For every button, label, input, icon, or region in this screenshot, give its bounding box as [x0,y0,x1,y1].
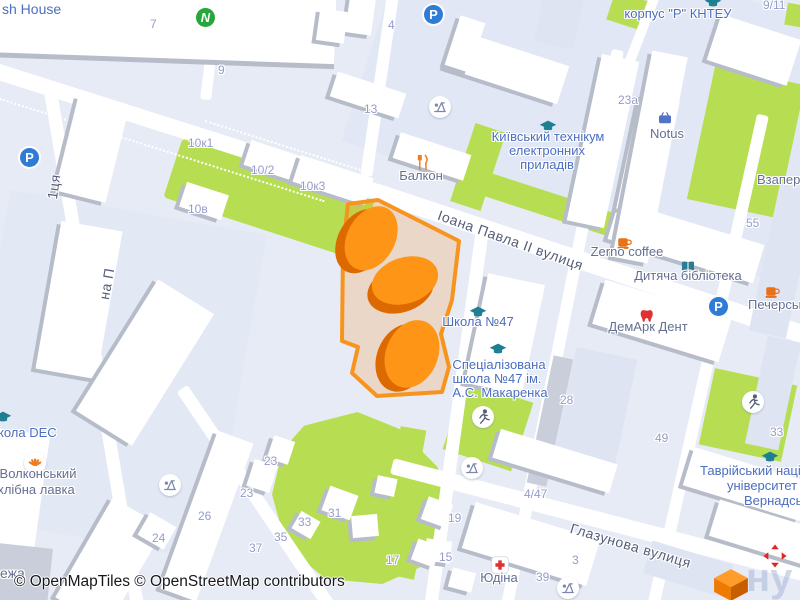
green-area [784,3,800,27]
poi-label: кола DEC [0,425,57,440]
building [345,0,377,36]
house-number: 9 [218,63,225,77]
house-number: 23a [618,93,638,107]
house-number: 26 [198,509,211,523]
building [351,514,379,538]
house-number: 55 [746,216,759,230]
house-number: 19 [448,511,461,525]
house-number: 7 [150,17,157,31]
street-label: 1ця [44,173,63,200]
building [374,475,397,497]
building [316,8,348,44]
house-number: 49 [655,431,668,445]
poi-label: Zerno coffee [591,244,664,259]
house-number: 37 [249,541,262,555]
parking-icon[interactable]: P [424,5,443,24]
house-number: 23 [264,454,277,468]
basket-icon[interactable] [656,109,674,127]
building [55,95,129,203]
orange-building [359,248,447,322]
poi-label: Печерськ [748,297,800,312]
poi-label: університет ім [727,478,800,493]
poi-label: Таврійський націон [700,463,800,478]
poi-label: Київський технікум [492,129,605,144]
house-number: 31 [328,506,341,520]
poi-label: Школа №47 [442,314,514,329]
poi-label: школа №47 ім. [452,371,541,386]
house-number: 9/11 [763,0,785,12]
house-number: 10к3 [300,179,325,193]
poi-label: Взаперт [757,172,800,187]
house-number: 23 [240,486,253,500]
poi-label: ДемАрк Дент [608,319,687,334]
playground-icon[interactable] [159,474,181,496]
house-number: 13 [364,102,377,116]
parking-icon[interactable]: P [20,148,39,167]
poi-label: корпус "Р" КНТЕУ [624,6,731,21]
cube-logo[interactable] [712,568,750,600]
poi-label: Волконський [0,466,76,481]
house-number: 17 [386,553,399,567]
map-canvas[interactable]: Іоана Павла II вулиця Глазунова вулиця 1… [0,0,800,600]
playground-icon[interactable] [557,577,579,599]
pan-control-icon[interactable] [762,543,788,574]
poi-label: Вернадсько [744,493,800,508]
poi-label: Юдіна [480,570,517,585]
playground-icon[interactable] [429,96,451,118]
house-number: 33 [770,425,783,439]
house-number: 3 [572,553,579,567]
attribution[interactable]: © OpenMapTiles © OpenStreetMap contribut… [14,573,345,591]
house-number: 10к1 [188,136,213,150]
house-number: 10в [188,202,208,216]
poi-label: sh House [2,1,61,17]
playground-icon[interactable] [461,457,483,479]
running-icon[interactable] [472,406,494,428]
running-icon[interactable] [742,391,764,413]
house-number: 10/2 [251,163,274,177]
poi-label: Спеціалізована [452,357,545,372]
house-number: 15 [439,550,452,564]
house-number: 39 [536,570,549,584]
building [448,567,476,593]
poi-label: Notus [650,126,684,141]
orange-building [366,309,450,402]
house-number: 35 [274,530,287,544]
house-number: 4 [388,18,395,32]
poi-label: Балкон [399,168,443,183]
house-number: 4/47 [524,487,547,501]
poi-label: хлібна лавка [0,482,75,497]
house-number: 28 [560,393,573,407]
poi-label: А.С. Макаренка [452,385,547,400]
parking-icon[interactable]: P [709,297,728,316]
poi-label: Дитяча бібліотека [634,268,742,283]
house-number: 24 [152,531,165,545]
poi-label: приладів [520,157,574,172]
house-number: 33 [298,515,311,529]
poi-label: електронних [509,143,585,158]
novus-icon[interactable]: N [196,8,215,27]
